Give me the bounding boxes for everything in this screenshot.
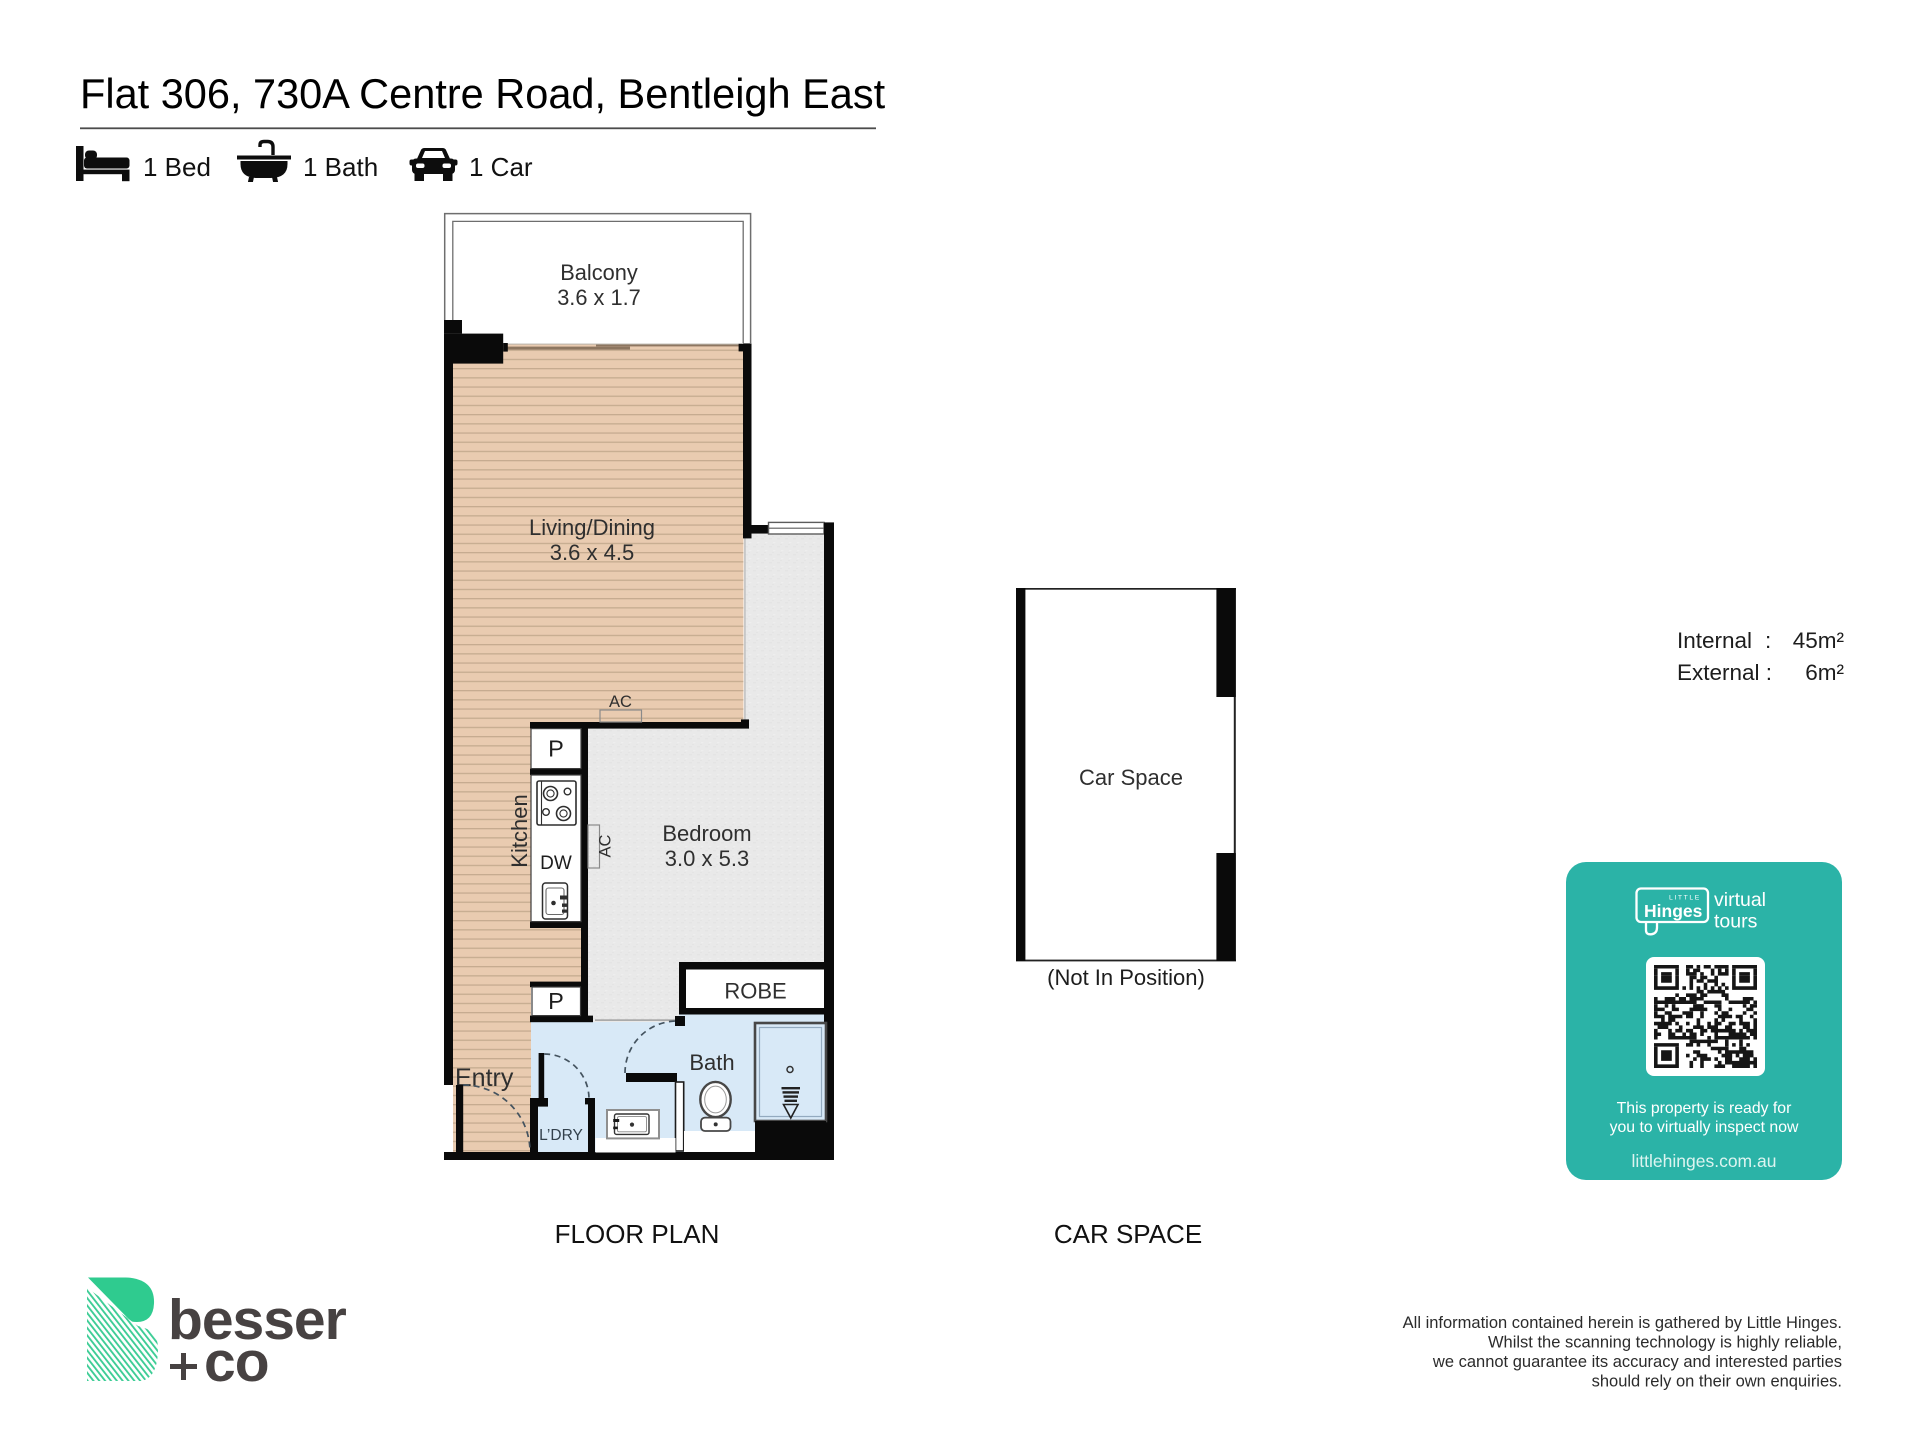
svg-text:All information contained here: All information contained herein is gath… xyxy=(1403,1314,1842,1332)
svg-text:This property is ready for: This property is ready for xyxy=(1617,1100,1792,1117)
svg-text:Whilst the scanning technology: Whilst the scanning technology is highly… xyxy=(1488,1334,1842,1352)
svg-text:Kitchen: Kitchen xyxy=(507,794,532,867)
svg-text:1 Car: 1 Car xyxy=(469,152,533,182)
svg-text:Bedroom: Bedroom xyxy=(662,821,751,846)
svg-text:DW: DW xyxy=(540,853,572,874)
svg-text:we cannot guarantee its accura: we cannot guarantee its accuracy and int… xyxy=(1432,1353,1842,1371)
svg-text:Hinges: Hinges xyxy=(1644,901,1703,921)
svg-text:ROBE: ROBE xyxy=(724,979,786,1004)
svg-text:P: P xyxy=(548,988,564,1014)
svg-text:AC: AC xyxy=(596,834,614,857)
svg-text:6m²: 6m² xyxy=(1805,660,1844,685)
svg-text:CAR SPACE: CAR SPACE xyxy=(1054,1219,1202,1249)
svg-text:P: P xyxy=(548,736,564,762)
svg-text:littlehinges.com.au: littlehinges.com.au xyxy=(1632,1151,1777,1171)
svg-text:FLOOR PLAN: FLOOR PLAN xyxy=(555,1219,720,1249)
svg-text:3.6 x 1.7: 3.6 x 1.7 xyxy=(557,285,641,310)
svg-text:tours: tours xyxy=(1714,911,1758,933)
svg-text:co: co xyxy=(204,1330,269,1394)
svg-text:1 Bed: 1 Bed xyxy=(143,152,211,182)
svg-text:virtual: virtual xyxy=(1714,889,1766,911)
svg-text::: : xyxy=(1765,628,1771,653)
svg-text:3.6 x 4.5: 3.6 x 4.5 xyxy=(550,540,634,565)
svg-text:3.0 x 5.3: 3.0 x 5.3 xyxy=(665,846,749,871)
svg-text:45m²: 45m² xyxy=(1793,628,1845,653)
svg-text:(Not In Position): (Not In Position) xyxy=(1047,965,1205,990)
svg-text:L’DRY: L’DRY xyxy=(539,1127,583,1144)
svg-text:you to virtually inspect now: you to virtually inspect now xyxy=(1610,1119,1799,1136)
svg-text:should rely on their own enqui: should rely on their own enquiries. xyxy=(1592,1373,1842,1391)
svg-text:Living/Dining: Living/Dining xyxy=(529,515,655,540)
svg-text:Balcony: Balcony xyxy=(560,260,638,285)
svg-text:Internal: Internal xyxy=(1677,628,1752,653)
svg-text:External :: External : xyxy=(1677,660,1772,685)
svg-text:Flat 306, 730A Centre Road, Be: Flat 306, 730A Centre Road, Bentleigh Ea… xyxy=(80,70,886,117)
svg-text:Bath: Bath xyxy=(689,1050,734,1075)
svg-text:AC: AC xyxy=(609,693,632,711)
svg-text:Car Space: Car Space xyxy=(1079,765,1183,790)
svg-text:1 Bath: 1 Bath xyxy=(303,152,378,182)
